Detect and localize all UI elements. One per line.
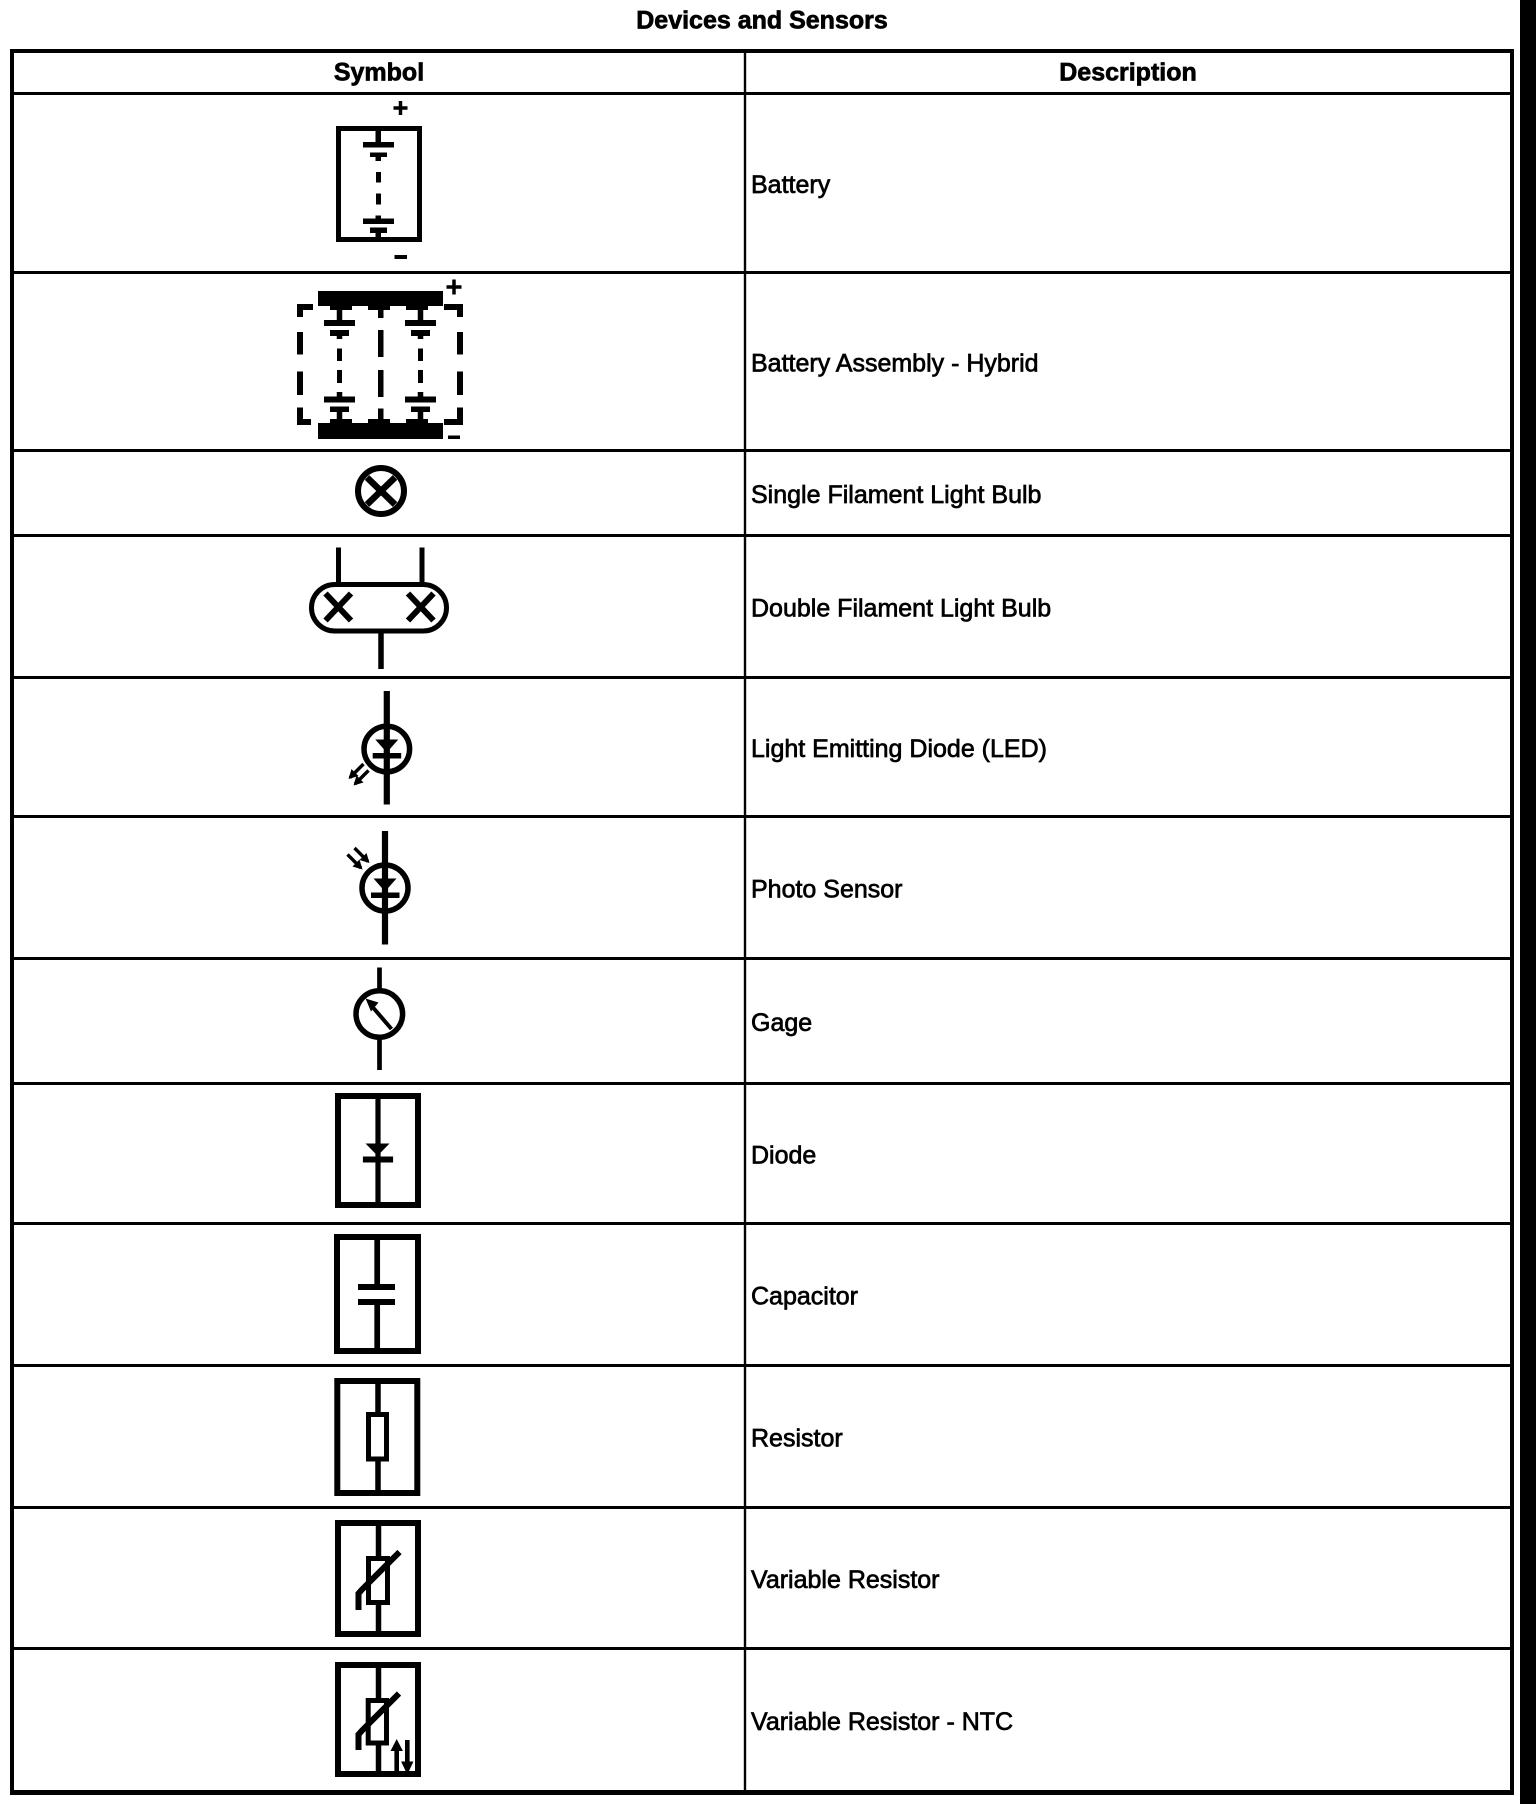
- svg-text:Battery Assembly - Hybrid: Battery Assembly - Hybrid: [751, 350, 1039, 378]
- svg-text:Battery: Battery: [751, 171, 831, 199]
- svg-text:Description: Description: [1059, 59, 1197, 87]
- svg-text:Capacitor: Capacitor: [751, 1283, 858, 1311]
- svg-text:Resistor: Resistor: [751, 1425, 843, 1453]
- svg-text:Light Emitting Diode (LED): Light Emitting Diode (LED): [751, 735, 1047, 763]
- svg-text:Symbol: Symbol: [334, 59, 424, 87]
- svg-text:Double Filament Light Bulb: Double Filament Light Bulb: [751, 595, 1051, 623]
- svg-text:Gage: Gage: [751, 1009, 812, 1037]
- svg-text:Diode: Diode: [751, 1142, 816, 1170]
- svg-text:Variable Resistor - NTC: Variable Resistor - NTC: [751, 1708, 1013, 1736]
- svg-text:Photo Sensor: Photo Sensor: [751, 876, 903, 904]
- svg-text:Devices and Sensors: Devices and Sensors: [636, 7, 888, 35]
- svg-text:Variable Resistor: Variable Resistor: [751, 1566, 940, 1594]
- svg-text:Single Filament Light Bulb: Single Filament Light Bulb: [751, 481, 1041, 509]
